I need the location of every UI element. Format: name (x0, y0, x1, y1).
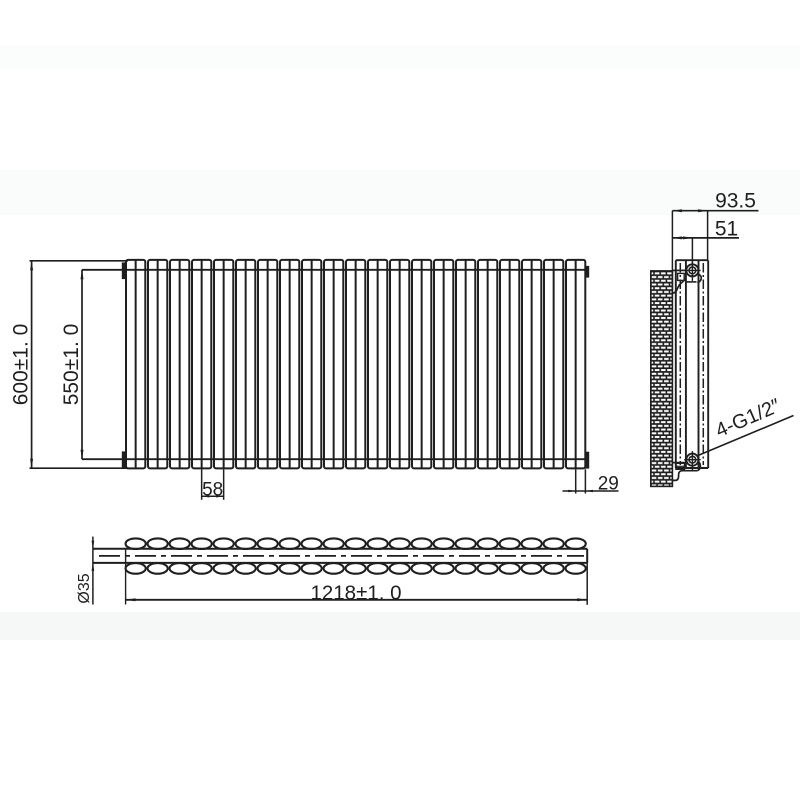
svg-text:Ø35: Ø35 (76, 573, 93, 603)
svg-text:600±1. 0: 600±1. 0 (10, 324, 33, 406)
svg-text:1218±1. 0: 1218±1. 0 (310, 581, 401, 604)
svg-text:58: 58 (202, 479, 223, 500)
svg-text:550±1. 0: 550±1. 0 (60, 324, 83, 406)
svg-text:93.5: 93.5 (715, 190, 756, 213)
svg-text:51: 51 (715, 217, 738, 240)
svg-text:29: 29 (598, 473, 619, 494)
